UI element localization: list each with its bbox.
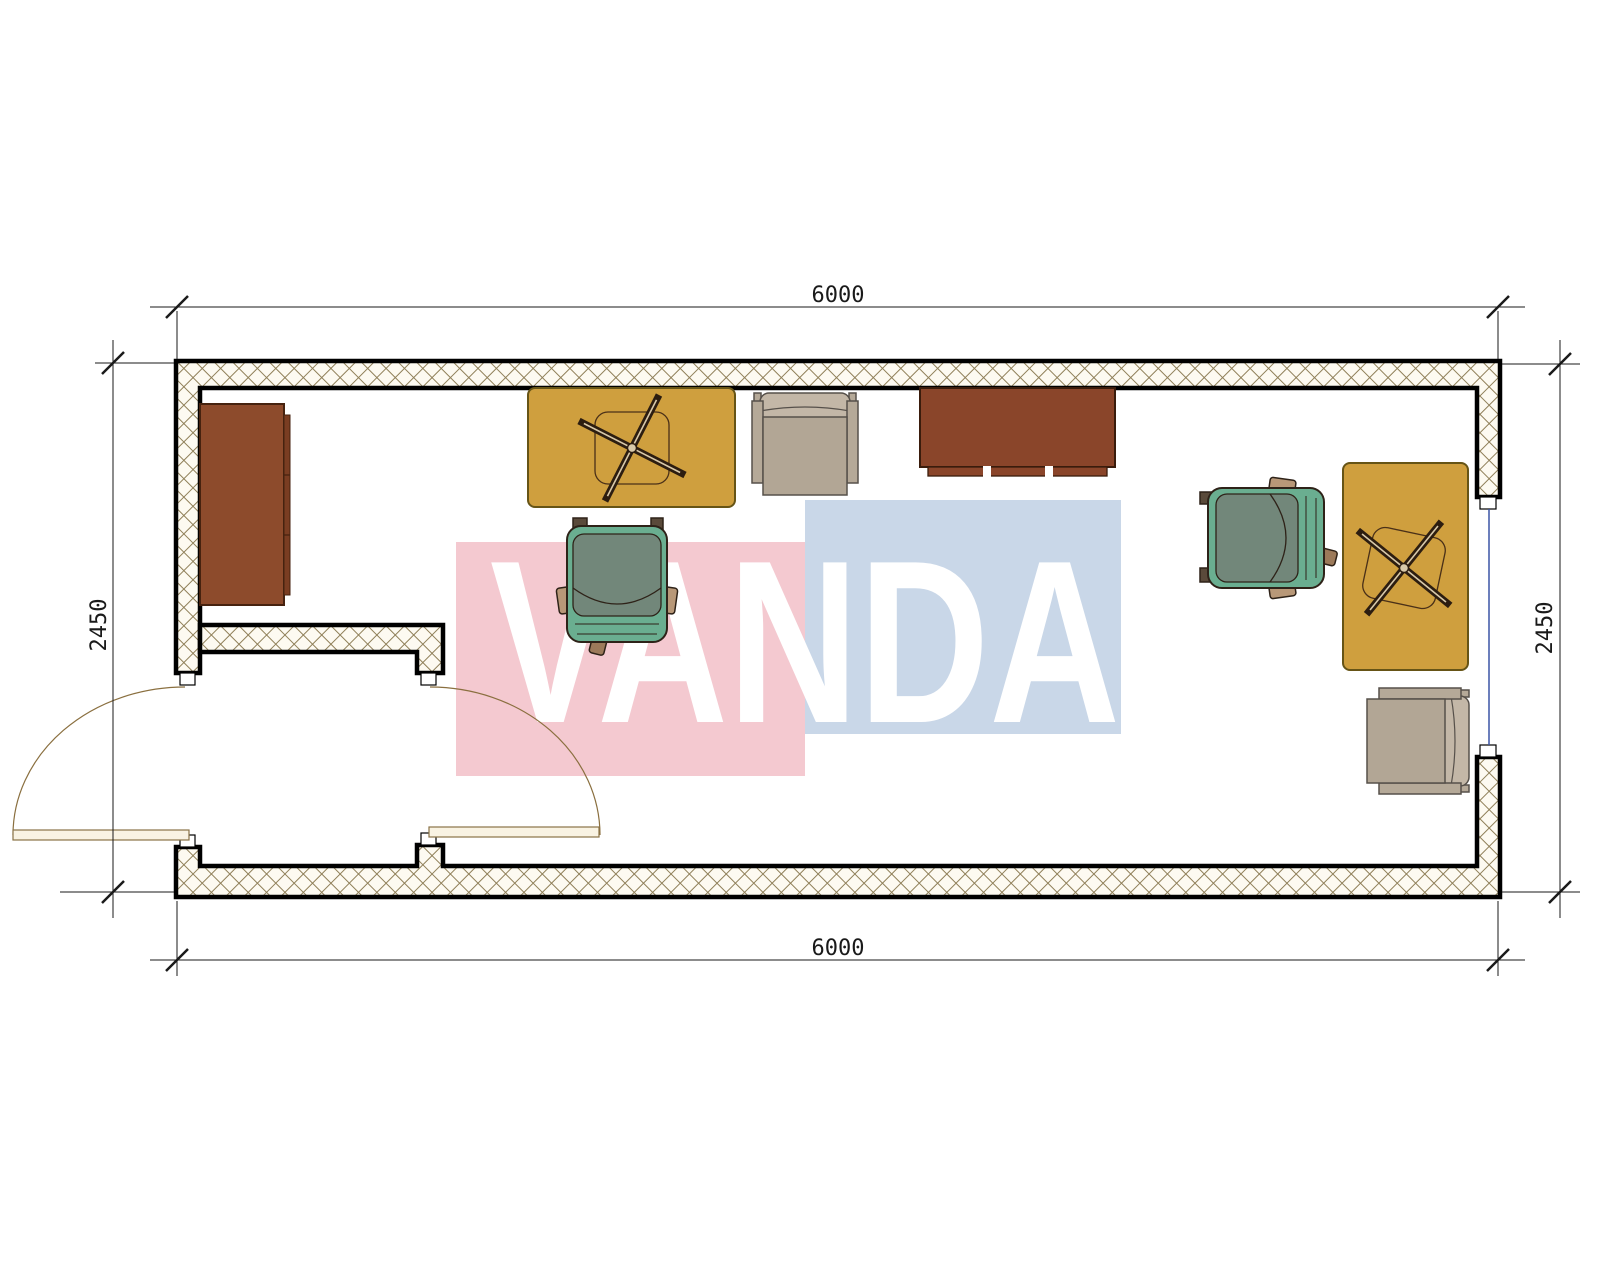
door-jamb (421, 673, 436, 685)
armchair-top (752, 393, 858, 495)
office-chair-right (1200, 477, 1338, 599)
door-jamb (180, 673, 195, 685)
cabinet-drawer-strip (284, 415, 290, 595)
desk-right (1315, 463, 1494, 670)
sideboard (920, 388, 1115, 477)
door-leaf-left (13, 830, 189, 840)
dim-label-bottom: 6000 (812, 936, 865, 961)
sideboard-body (920, 388, 1115, 467)
window-jamb (1480, 497, 1496, 509)
floor-plan-drawing: VANDA (0, 0, 1600, 1280)
wall-bottom-right (176, 757, 1500, 897)
storage-cabinet (200, 404, 290, 605)
dim-label-top: 6000 (812, 283, 865, 308)
wall-vestibule (200, 625, 443, 673)
window-jamb (1480, 745, 1496, 757)
floor-plan-canvas: VANDA (0, 0, 1600, 1280)
dim-label-right: 2450 (1533, 602, 1558, 655)
sideboard-base (928, 467, 1107, 476)
sideboard-base-gap (1045, 466, 1053, 477)
sideboard-base-gap (983, 466, 991, 477)
desk-top-center (528, 373, 735, 524)
dim-label-left: 2450 (87, 599, 112, 652)
door-leaf-right (429, 827, 599, 837)
door-swing-arc-left (13, 687, 185, 835)
armchair-bottom-right (1367, 688, 1469, 794)
office-chair-center (556, 518, 678, 656)
cabinet-body (200, 404, 284, 605)
